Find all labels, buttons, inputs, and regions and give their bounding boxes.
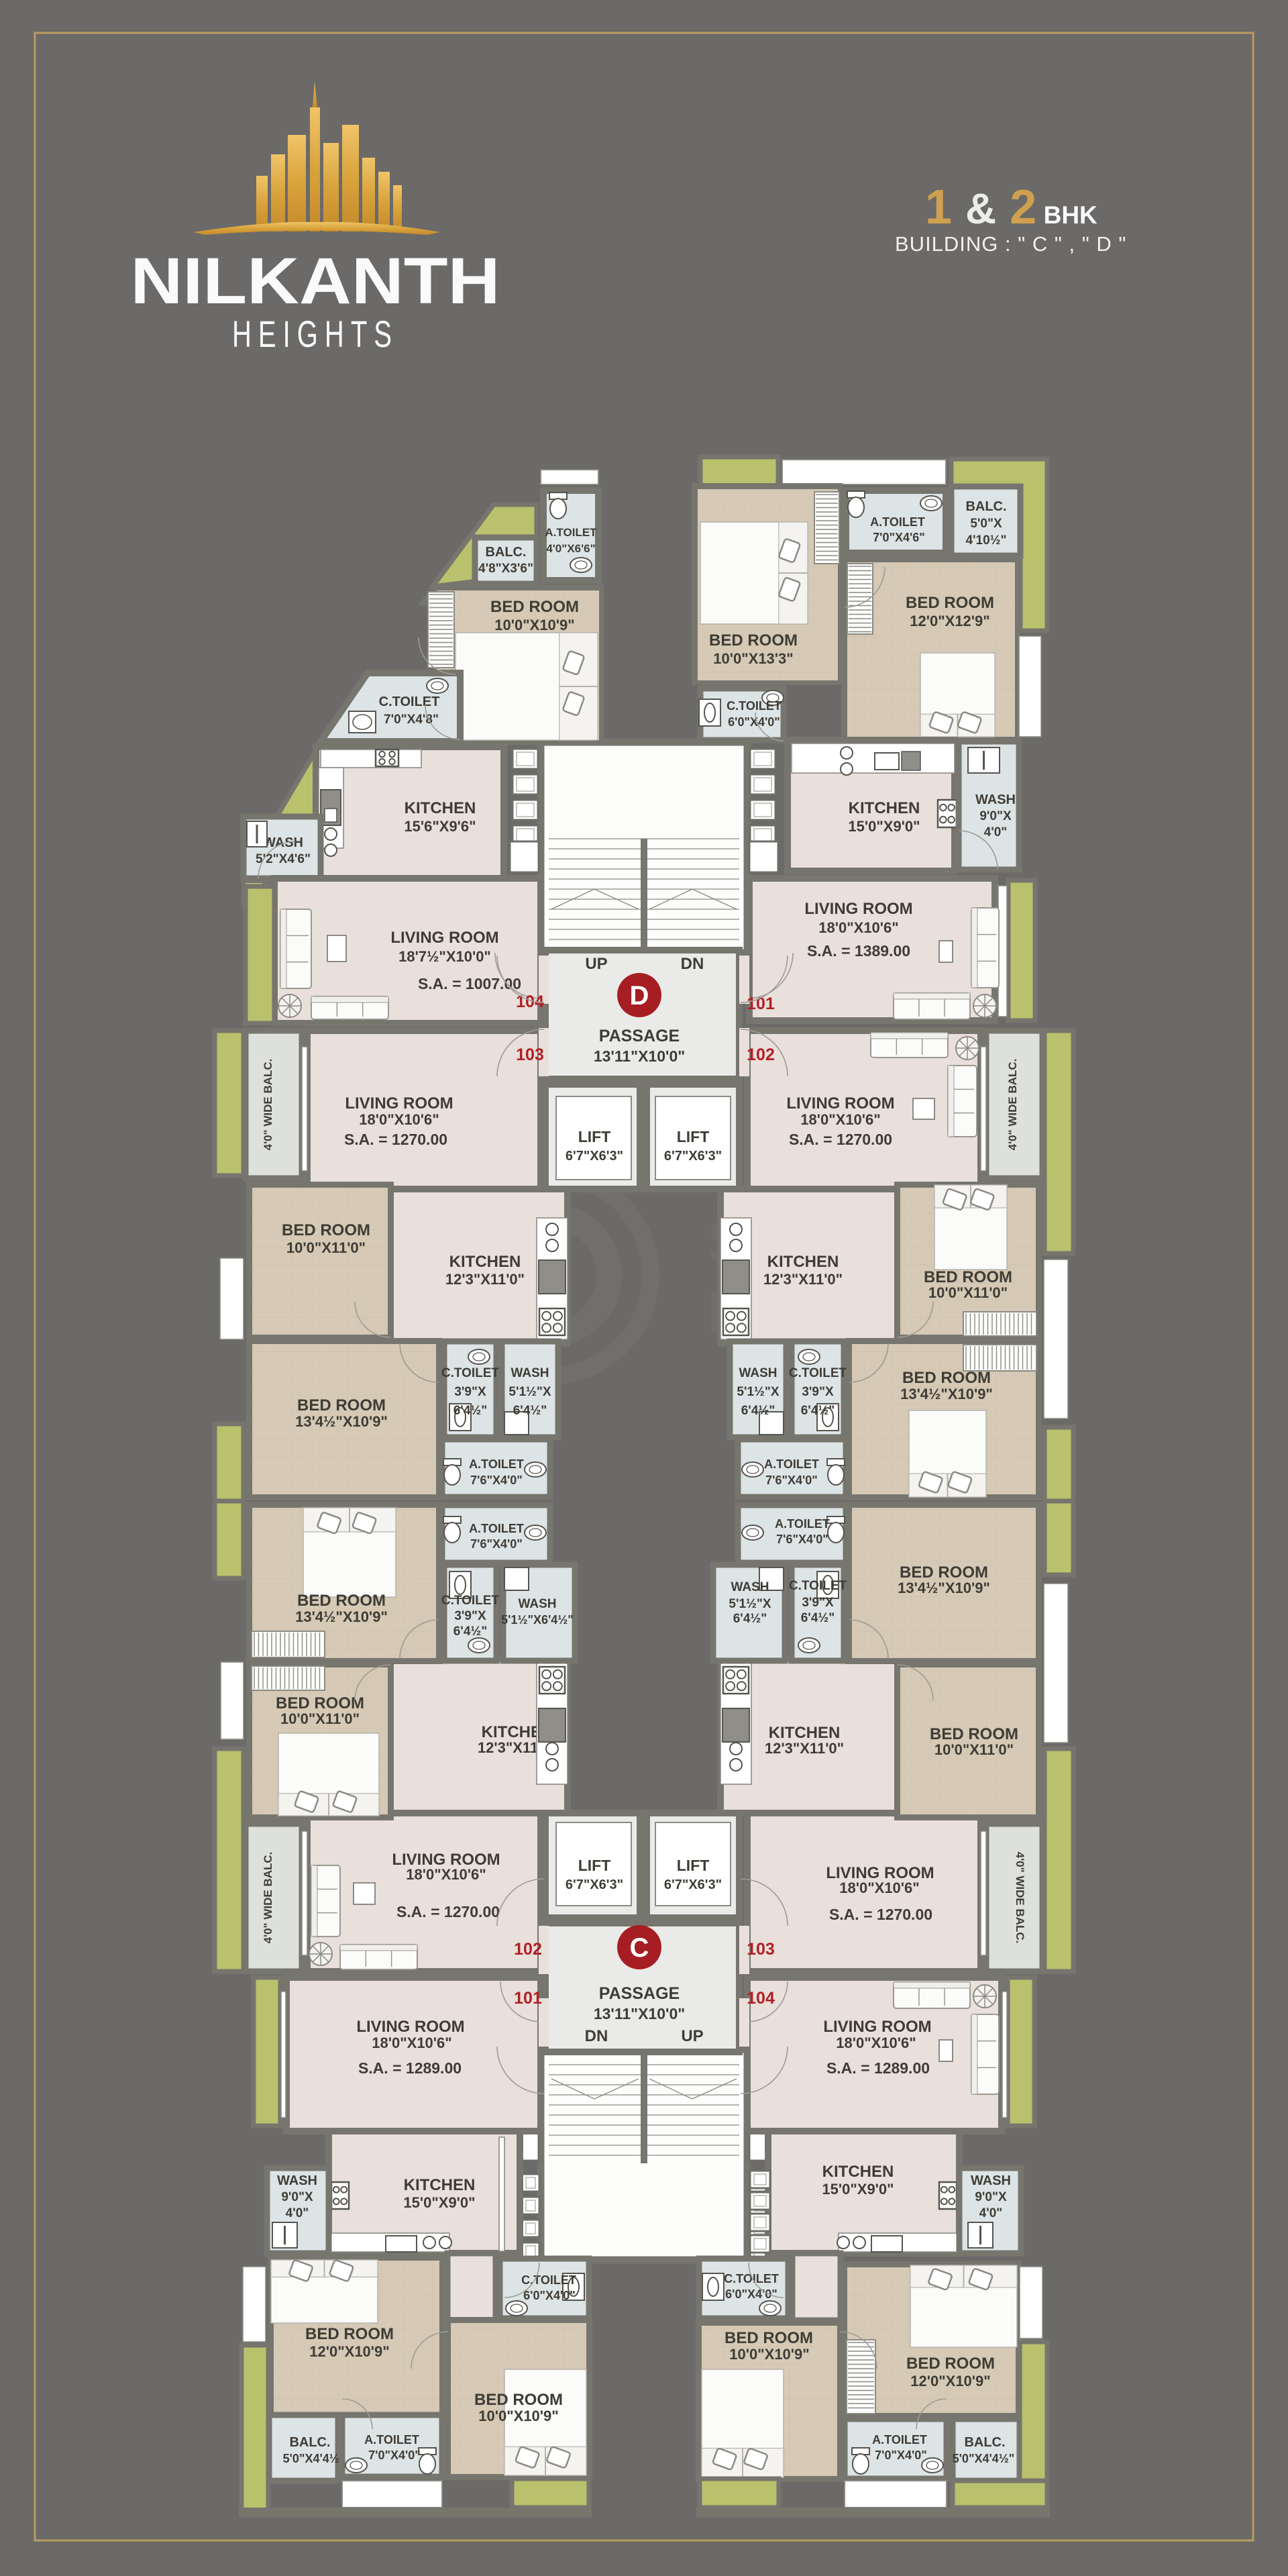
- svg-text:PASSAGE: PASSAGE: [599, 1984, 680, 2003]
- svg-text:3'9"X: 3'9"X: [802, 1596, 834, 1610]
- svg-text:WASH: WASH: [511, 1366, 549, 1380]
- svg-text:7'6"X4'0": 7'6"X4'0": [470, 1474, 523, 1487]
- svg-text:9'0"X: 9'0"X: [975, 2190, 1007, 2204]
- svg-text:S.A. = 1289.00: S.A. = 1289.00: [358, 2059, 462, 2077]
- svg-text:6'7"X6'3": 6'7"X6'3": [664, 1149, 722, 1164]
- svg-text:PASSAGE: PASSAGE: [599, 1027, 680, 1045]
- svg-text:104: 104: [747, 1989, 775, 2008]
- svg-text:102: 102: [514, 1940, 542, 1959]
- svg-text:BALC.: BALC.: [965, 499, 1006, 514]
- svg-text:KITCHEN: KITCHEN: [849, 799, 920, 817]
- svg-text:3'9"X: 3'9"X: [454, 1385, 486, 1399]
- svg-text:7'6"X4'0": 7'6"X4'0": [776, 1533, 828, 1546]
- svg-text:BED ROOM: BED ROOM: [924, 1268, 1012, 1286]
- svg-text:5'0"X: 5'0"X: [970, 517, 1002, 531]
- svg-text:10'0"X13'3": 10'0"X13'3": [713, 650, 793, 667]
- svg-text:12'3"X11'0": 12'3"X11'0": [445, 1271, 525, 1288]
- svg-text:WASH: WASH: [263, 835, 303, 850]
- svg-text:13'4½"X10'9": 13'4½"X10'9": [898, 1580, 990, 1596]
- svg-text:5'0"X4'4½": 5'0"X4'4½": [953, 2452, 1015, 2465]
- svg-text:6'0"X4'0": 6'0"X4'0": [523, 2289, 576, 2302]
- svg-text:18'0"X10'6": 18'0"X10'6": [359, 1111, 439, 1128]
- svg-text:101: 101: [747, 994, 775, 1013]
- svg-text:5'1½"X: 5'1½"X: [737, 1385, 780, 1399]
- svg-text:13'11"X10'0": 13'11"X10'0": [594, 2005, 685, 2022]
- svg-text:WASH: WASH: [739, 1366, 777, 1380]
- svg-text:4'0": 4'0": [286, 2206, 309, 2220]
- svg-text:BED ROOM: BED ROOM: [900, 1563, 988, 1582]
- svg-text:7'0"X4'0": 7'0"X4'0": [368, 2449, 421, 2462]
- svg-text:NILKANTH: NILKANTH: [131, 244, 500, 317]
- svg-text:10'0"X11'0": 10'0"X11'0": [280, 1710, 360, 1727]
- svg-text:S.A. = 1389.00: S.A. = 1389.00: [807, 942, 910, 960]
- svg-text:4'0"X6'6": 4'0"X6'6": [546, 542, 595, 555]
- svg-text:BED ROOM: BED ROOM: [297, 1592, 386, 1610]
- svg-text:12'0"X12'9": 12'0"X12'9": [910, 613, 989, 629]
- svg-text:10'0"X10'9": 10'0"X10'9": [729, 2346, 809, 2363]
- svg-text:C.TOILET: C.TOILET: [379, 694, 440, 709]
- svg-text:D: D: [630, 981, 649, 1011]
- svg-text:6'4½": 6'4½": [801, 1611, 835, 1625]
- svg-text:9'0"X: 9'0"X: [281, 2190, 313, 2204]
- svg-text:KITCHEN: KITCHEN: [769, 1724, 841, 1742]
- svg-text:BED ROOM: BED ROOM: [297, 1396, 386, 1414]
- svg-text:10'0"X10'9": 10'0"X10'9": [494, 617, 574, 633]
- svg-text:LIVING ROOM: LIVING ROOM: [356, 2018, 464, 2036]
- svg-text:S.A. = 1270.00: S.A. = 1270.00: [829, 1906, 932, 1923]
- svg-text:15'0"X9'0": 15'0"X9'0": [822, 2181, 894, 2198]
- svg-text:LIFT: LIFT: [677, 1857, 710, 1874]
- svg-text:UP: UP: [681, 2027, 703, 2045]
- svg-text:LIFT: LIFT: [578, 1128, 611, 1145]
- svg-text:4'8"X3'6": 4'8"X3'6": [478, 562, 533, 576]
- svg-text:7'6"X4'0": 7'6"X4'0": [470, 1537, 523, 1551]
- svg-text:C.TOILET: C.TOILET: [521, 2273, 576, 2287]
- svg-text:HEIGHTS: HEIGHTS: [232, 313, 398, 355]
- svg-text:13'11"X10'0": 13'11"X10'0": [594, 1047, 685, 1065]
- svg-text:A.TOILET: A.TOILET: [870, 515, 925, 529]
- svg-text:KITCHEN: KITCHEN: [767, 1253, 839, 1271]
- svg-text:15'0"X9'0": 15'0"X9'0": [403, 2194, 475, 2211]
- svg-text:LIVING ROOM: LIVING ROOM: [390, 929, 498, 947]
- svg-text:LIVING ROOM: LIVING ROOM: [823, 2018, 931, 2036]
- svg-text:13'4½"X10'9": 13'4½"X10'9": [295, 1608, 388, 1625]
- svg-text:5'1½"X6'4½": 5'1½"X6'4½": [501, 1613, 574, 1627]
- svg-text:BALC.: BALC.: [289, 2435, 330, 2450]
- svg-text:15'6"X9'6": 15'6"X9'6": [404, 818, 476, 835]
- svg-text:KITCHEN: KITCHEN: [449, 1253, 521, 1271]
- svg-text:BALC.: BALC.: [485, 545, 526, 560]
- svg-text:7'0"X4'8": 7'0"X4'8": [384, 713, 439, 727]
- svg-text:BALC.: BALC.: [964, 2435, 1005, 2450]
- svg-text:A.TOILET: A.TOILET: [469, 1457, 524, 1471]
- svg-text:C.TOILET: C.TOILET: [724, 2272, 779, 2285]
- svg-text:DN: DN: [681, 955, 704, 973]
- svg-text:18'0"X10'6": 18'0"X10'6": [836, 2034, 916, 2051]
- svg-text:BED ROOM: BED ROOM: [906, 594, 994, 612]
- svg-text:6'4½": 6'4½": [801, 1404, 835, 1418]
- svg-text:18'0"X10'6": 18'0"X10'6": [839, 1879, 919, 1896]
- svg-text:4'0" WIDE BALC.: 4'0" WIDE BALC.: [262, 1059, 274, 1151]
- svg-text:9'0"X: 9'0"X: [979, 809, 1012, 823]
- svg-text:13'4½"X10'9": 13'4½"X10'9": [900, 1386, 993, 1402]
- svg-text:18'0"X10'6": 18'0"X10'6": [818, 919, 898, 936]
- svg-text:A.TOILET: A.TOILET: [872, 2433, 927, 2446]
- svg-text:BED ROOM: BED ROOM: [305, 2325, 394, 2343]
- svg-text:18'0"X10'6": 18'0"X10'6": [372, 2034, 451, 2051]
- svg-text:102: 102: [747, 1045, 775, 1064]
- svg-text:BUILDING : " C " , " D ": BUILDING : " C " , " D ": [895, 232, 1126, 256]
- svg-text:6'0"X4'0": 6'0"X4'0": [728, 715, 780, 729]
- svg-text:103: 103: [747, 1940, 775, 1959]
- svg-text:10'0"X11'0": 10'0"X11'0": [286, 1239, 366, 1256]
- svg-text:KITCHEN: KITCHEN: [404, 2176, 476, 2194]
- svg-text:C: C: [630, 1933, 649, 1963]
- svg-text:UP: UP: [585, 955, 607, 973]
- svg-text:C.TOILET: C.TOILET: [727, 699, 782, 713]
- svg-text:BED ROOM: BED ROOM: [709, 631, 798, 650]
- svg-text:6'4½": 6'4½": [513, 1404, 547, 1418]
- svg-text:WASH: WASH: [519, 1597, 557, 1611]
- svg-text:BED ROOM: BED ROOM: [474, 2391, 563, 2409]
- svg-text:3'9"X: 3'9"X: [802, 1385, 834, 1399]
- svg-text:10'0"X11'0": 10'0"X11'0": [928, 1284, 1008, 1301]
- svg-text:4'0": 4'0": [984, 825, 1008, 839]
- svg-text:3'9"X: 3'9"X: [454, 1609, 486, 1623]
- svg-text:LIVING ROOM: LIVING ROOM: [786, 1094, 894, 1113]
- svg-text:103: 103: [516, 1045, 544, 1064]
- svg-text:C.TOILET: C.TOILET: [441, 1366, 500, 1380]
- svg-text:A.TOILET: A.TOILET: [775, 1517, 830, 1531]
- svg-text:18'0"X10'6": 18'0"X10'6": [800, 1111, 880, 1128]
- svg-text:6'7"X6'3": 6'7"X6'3": [664, 1877, 722, 1892]
- svg-text:BED ROOM: BED ROOM: [930, 1725, 1018, 1743]
- svg-text:7'6"X4'0": 7'6"X4'0": [765, 1474, 818, 1487]
- svg-text:6'4½": 6'4½": [453, 1625, 488, 1639]
- svg-text:BED ROOM: BED ROOM: [276, 1694, 364, 1712]
- svg-text:15'0"X9'0": 15'0"X9'0": [848, 818, 920, 835]
- svg-text:WASH: WASH: [277, 2173, 317, 2188]
- svg-text:A.TOILET: A.TOILET: [545, 526, 597, 539]
- svg-text:A.TOILET: A.TOILET: [364, 2433, 419, 2446]
- svg-text:10'0"X11'0": 10'0"X11'0": [934, 1741, 1014, 1758]
- svg-text:5'1½"X: 5'1½"X: [729, 1597, 771, 1611]
- svg-text:KITCHEN: KITCHEN: [822, 2163, 894, 2181]
- svg-text:C.TOILET: C.TOILET: [441, 1594, 500, 1608]
- svg-text:12'3"X11'0": 12'3"X11'0": [765, 1740, 844, 1757]
- svg-text:13'4½"X10'9": 13'4½"X10'9": [295, 1413, 388, 1430]
- svg-text:A.TOILET: A.TOILET: [764, 1457, 819, 1471]
- svg-text:C.TOILET: C.TOILET: [789, 1579, 847, 1593]
- svg-text:10'0"X10'9": 10'0"X10'9": [478, 2408, 558, 2424]
- svg-text:S.A. = 1289.00: S.A. = 1289.00: [826, 2059, 930, 2077]
- svg-text:4'0": 4'0": [979, 2206, 1003, 2220]
- svg-text:6'7"X6'3": 6'7"X6'3": [566, 1877, 623, 1892]
- svg-text:7'0"X4'0": 7'0"X4'0": [875, 2449, 927, 2462]
- svg-text:4'0" WIDE BALC.: 4'0" WIDE BALC.: [1014, 1852, 1026, 1944]
- svg-text:18'0"X10'6": 18'0"X10'6": [406, 1866, 486, 1883]
- svg-text:LIFT: LIFT: [677, 1128, 710, 1145]
- svg-text:12'0"X10'9": 12'0"X10'9": [910, 2373, 990, 2389]
- svg-text:6'4½": 6'4½": [453, 1404, 488, 1418]
- svg-text:LIFT: LIFT: [578, 1857, 611, 1874]
- svg-text:C.TOILET: C.TOILET: [789, 1366, 847, 1380]
- svg-text:6'7"X6'3": 6'7"X6'3": [566, 1149, 623, 1164]
- svg-text:12'0"X10'9": 12'0"X10'9": [309, 2343, 389, 2360]
- svg-text:S.A. = 1270.00: S.A. = 1270.00: [789, 1131, 892, 1148]
- svg-text:6'4½": 6'4½": [733, 1612, 767, 1626]
- svg-text:5'0"X4'4½": 5'0"X4'4½": [283, 2452, 345, 2465]
- svg-text:KITCHEN: KITCHEN: [405, 799, 476, 817]
- svg-text:DN: DN: [585, 2027, 608, 2045]
- svg-text:WASH: WASH: [975, 792, 1016, 807]
- svg-text:LIVING ROOM: LIVING ROOM: [345, 1094, 453, 1113]
- svg-text:4'0" WIDE BALC.: 4'0" WIDE BALC.: [262, 1852, 274, 1944]
- svg-text:WASH: WASH: [971, 2173, 1011, 2188]
- svg-text:LIVING ROOM: LIVING ROOM: [804, 900, 912, 918]
- svg-text:4'10½": 4'10½": [965, 533, 1006, 548]
- svg-text:BED ROOM: BED ROOM: [282, 1221, 370, 1239]
- svg-text:6'4½": 6'4½": [741, 1404, 775, 1418]
- svg-text:7'0"X4'6": 7'0"X4'6": [873, 531, 925, 544]
- svg-text:5'1½"X: 5'1½"X: [508, 1385, 551, 1399]
- svg-text:WASH: WASH: [731, 1580, 769, 1594]
- svg-text:A.TOILET: A.TOILET: [469, 1522, 524, 1535]
- svg-text:S.A. = 1270.00: S.A. = 1270.00: [344, 1131, 447, 1148]
- svg-text:S.A. = 1270.00: S.A. = 1270.00: [396, 1903, 500, 1920]
- svg-text:BED ROOM: BED ROOM: [902, 1369, 991, 1387]
- svg-text:4'0" WIDE BALC.: 4'0" WIDE BALC.: [1006, 1059, 1019, 1151]
- svg-text:12'3"X11'0": 12'3"X11'0": [763, 1271, 843, 1288]
- svg-text:18'7½"X10'0": 18'7½"X10'0": [398, 948, 491, 965]
- svg-text:BED ROOM: BED ROOM: [906, 2355, 995, 2373]
- svg-text:101: 101: [514, 1989, 542, 2008]
- svg-text:BED ROOM: BED ROOM: [490, 598, 579, 616]
- svg-text:BED ROOM: BED ROOM: [724, 2329, 813, 2347]
